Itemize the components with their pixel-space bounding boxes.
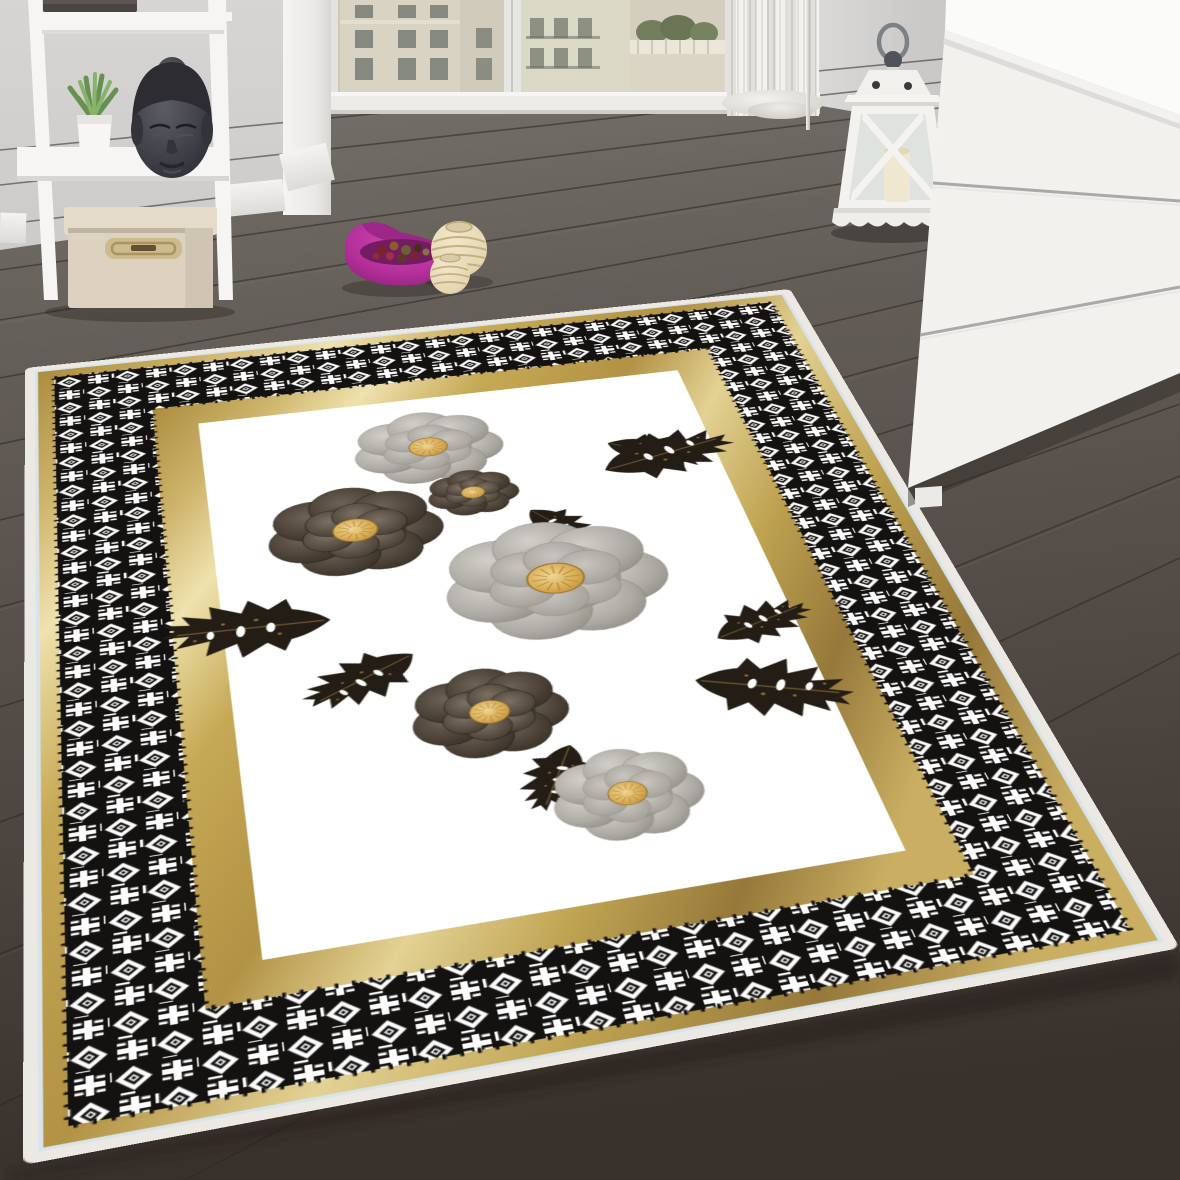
chest-foot [915, 486, 942, 508]
chest-of-drawers [880, 0, 1180, 530]
storage-box [64, 207, 217, 308]
room-scene [0, 0, 1180, 1180]
ladder-shelf [0, 0, 300, 330]
floor-decor [320, 200, 510, 310]
buddha-head [131, 57, 213, 178]
succulent-plant [70, 74, 116, 152]
curtain-fold [748, 102, 814, 119]
